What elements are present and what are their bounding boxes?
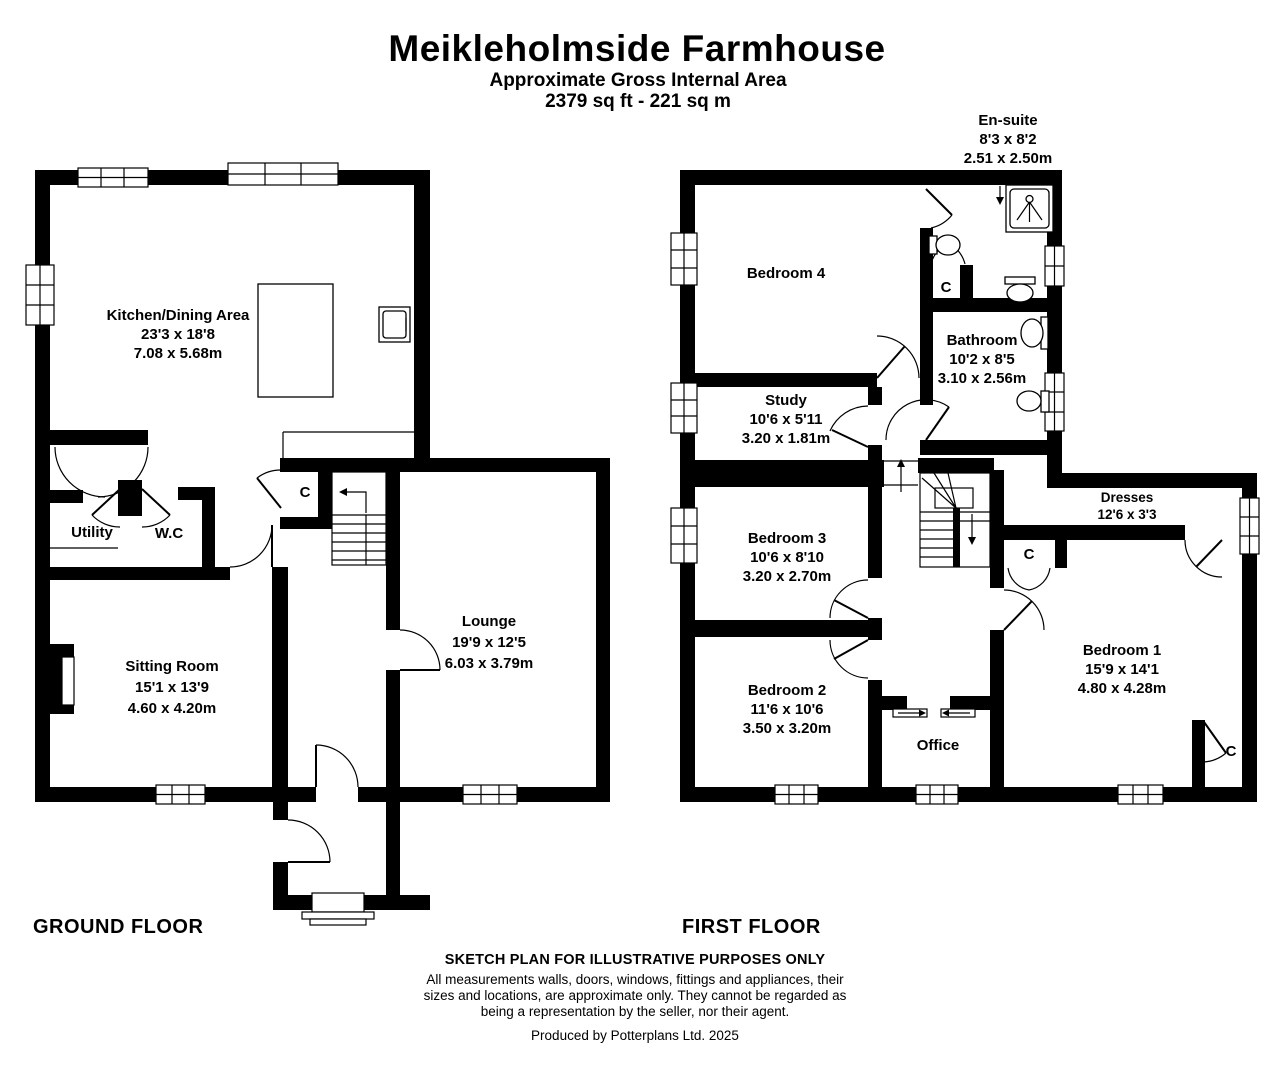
staircase (332, 472, 386, 565)
stairs-up-arrow (897, 459, 905, 467)
door-arc (1204, 753, 1226, 762)
door-arc (830, 580, 868, 618)
shower-icon (1006, 185, 1053, 232)
door-arc (316, 745, 358, 787)
toilet-icon (1017, 391, 1049, 412)
ground-floor-title: GROUND FLOOR (33, 916, 203, 939)
room-label-office: Office (917, 736, 960, 755)
window (671, 233, 697, 285)
disclaimer-title: SKETCH PLAN FOR ILLUSTRATIVE PURPOSES ON… (445, 952, 826, 968)
stairs-down-arrow (968, 537, 976, 545)
window (463, 785, 517, 804)
kitchen-island (258, 284, 333, 397)
window (78, 168, 148, 187)
cupboard-label: C (941, 278, 952, 297)
room-label-bathroom: Bathroom 10'2 x 8'5 3.10 x 2.56m (938, 331, 1026, 388)
ground-floor-walls (35, 170, 610, 910)
window (916, 785, 958, 804)
ground-floor-plan (26, 163, 610, 925)
room-label-bedroom1: Bedroom 1 15'9 x 14'1 4.80 x 4.28m (1078, 641, 1166, 698)
door-arc (1029, 568, 1050, 590)
room-label-study: Study 10'6 x 5'11 3.20 x 1.81m (742, 391, 830, 448)
toilet-icon (929, 235, 960, 255)
page-title: Meikleholmside Farmhouse (388, 28, 885, 70)
fireplace-icon (48, 644, 74, 714)
stairs-landing (884, 459, 918, 492)
producer-credit: Produced by Potterplans Ltd. 2025 (531, 1028, 739, 1043)
window (1045, 246, 1064, 286)
sliding-doors (893, 709, 975, 717)
door-arc (55, 447, 105, 497)
stairs-direction-arrow (339, 488, 347, 496)
room-label-utility: Utility (71, 523, 113, 542)
door-arc (931, 215, 952, 228)
room-label-kitchen: Kitchen/Dining Area 23'3 x 18'8 7.08 x 5… (107, 306, 250, 363)
window (228, 163, 338, 185)
sink-icon (379, 307, 410, 342)
first-floor-title: FIRST FLOOR (682, 916, 821, 939)
cupboard-label: C (300, 483, 311, 502)
window (1240, 498, 1259, 554)
gross-area: 2379 sq ft - 221 sq m (545, 91, 731, 113)
window (26, 265, 54, 325)
room-label-ensuite: En-suite 8'3 x 8'2 2.51 x 2.50m (964, 111, 1052, 168)
window (671, 383, 697, 433)
door-arc (400, 630, 440, 670)
staircase (920, 473, 990, 567)
window (775, 785, 818, 804)
room-label-bedroom4: Bedroom 4 (747, 264, 825, 283)
floorplan-sheet: { "header": { "title": "Meikleholmside F… (0, 0, 1280, 1065)
door-arc (1008, 568, 1029, 590)
entrance-steps (302, 893, 374, 925)
ensuite-pointer-arrow (996, 186, 1004, 205)
window (671, 508, 697, 563)
window (156, 785, 205, 804)
room-label-bedroom3: Bedroom 3 10'6 x 8'10 3.20 x 2.70m (743, 529, 831, 586)
disclaimer-text: All measurements walls, doors, windows, … (424, 972, 847, 1020)
door-arc (830, 406, 868, 431)
room-label-dresses: Dresses 12'6 x 3'3 3.80 x 1.00m (1087, 489, 1167, 540)
window (1118, 785, 1163, 804)
room-label-lounge: Lounge 19'9 x 12'5 6.03 x 3.79m (445, 611, 533, 674)
door-arc (257, 470, 281, 478)
door-arc (230, 525, 272, 567)
cupboard-label: C (1024, 545, 1035, 564)
room-label-bedroom2: Bedroom 2 11'6 x 10'6 3.50 x 3.20m (743, 681, 831, 738)
door-arc (288, 820, 330, 862)
cupboard-label: C (1226, 742, 1237, 761)
page-subtitle: Approximate Gross Internal Area (489, 70, 786, 92)
basin-icon (1005, 277, 1035, 302)
room-label-sitting-room: Sitting Room 15'1 x 13'9 4.60 x 4.20m (125, 656, 218, 719)
room-label-wc: W.C (155, 524, 183, 543)
